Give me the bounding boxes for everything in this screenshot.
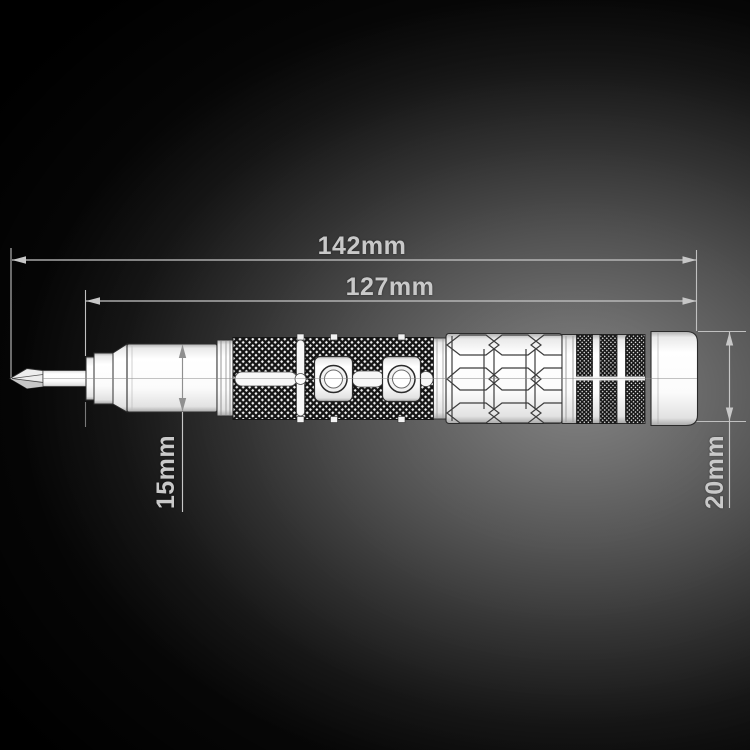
grip-button-plate-1 [315,357,353,402]
arrowhead-127-right [683,297,697,304]
screwdriver-front-barrel [127,344,217,412]
dimension-label-handle-diameter: 20mm [702,412,728,532]
screwdriver-collar [217,340,233,416]
grip-center-band-middle [352,371,384,387]
arrowhead-127-left [86,297,100,304]
grip-center-band-left [235,372,297,386]
dimension-label-total-length: 142mm [262,233,462,259]
arrowhead-142-right [683,256,697,263]
dimension-label-body-length: 127mm [290,274,490,300]
screwdriver-illustration [0,0,750,750]
dimension-label-front-barrel-diameter: 15mm [153,412,179,532]
screwdriver-chuck [86,344,127,412]
screwdriver-phillips-tip [10,369,43,389]
arrowhead-20-top [726,332,733,346]
screwdriver-ring-stack [562,335,645,424]
grip-button-plate-2 [383,357,421,402]
screwdriver-body [10,332,698,426]
product-dimension-diagram: 142mm 127mm 15mm 20mm [0,0,750,750]
arrowhead-142-left [12,256,26,263]
